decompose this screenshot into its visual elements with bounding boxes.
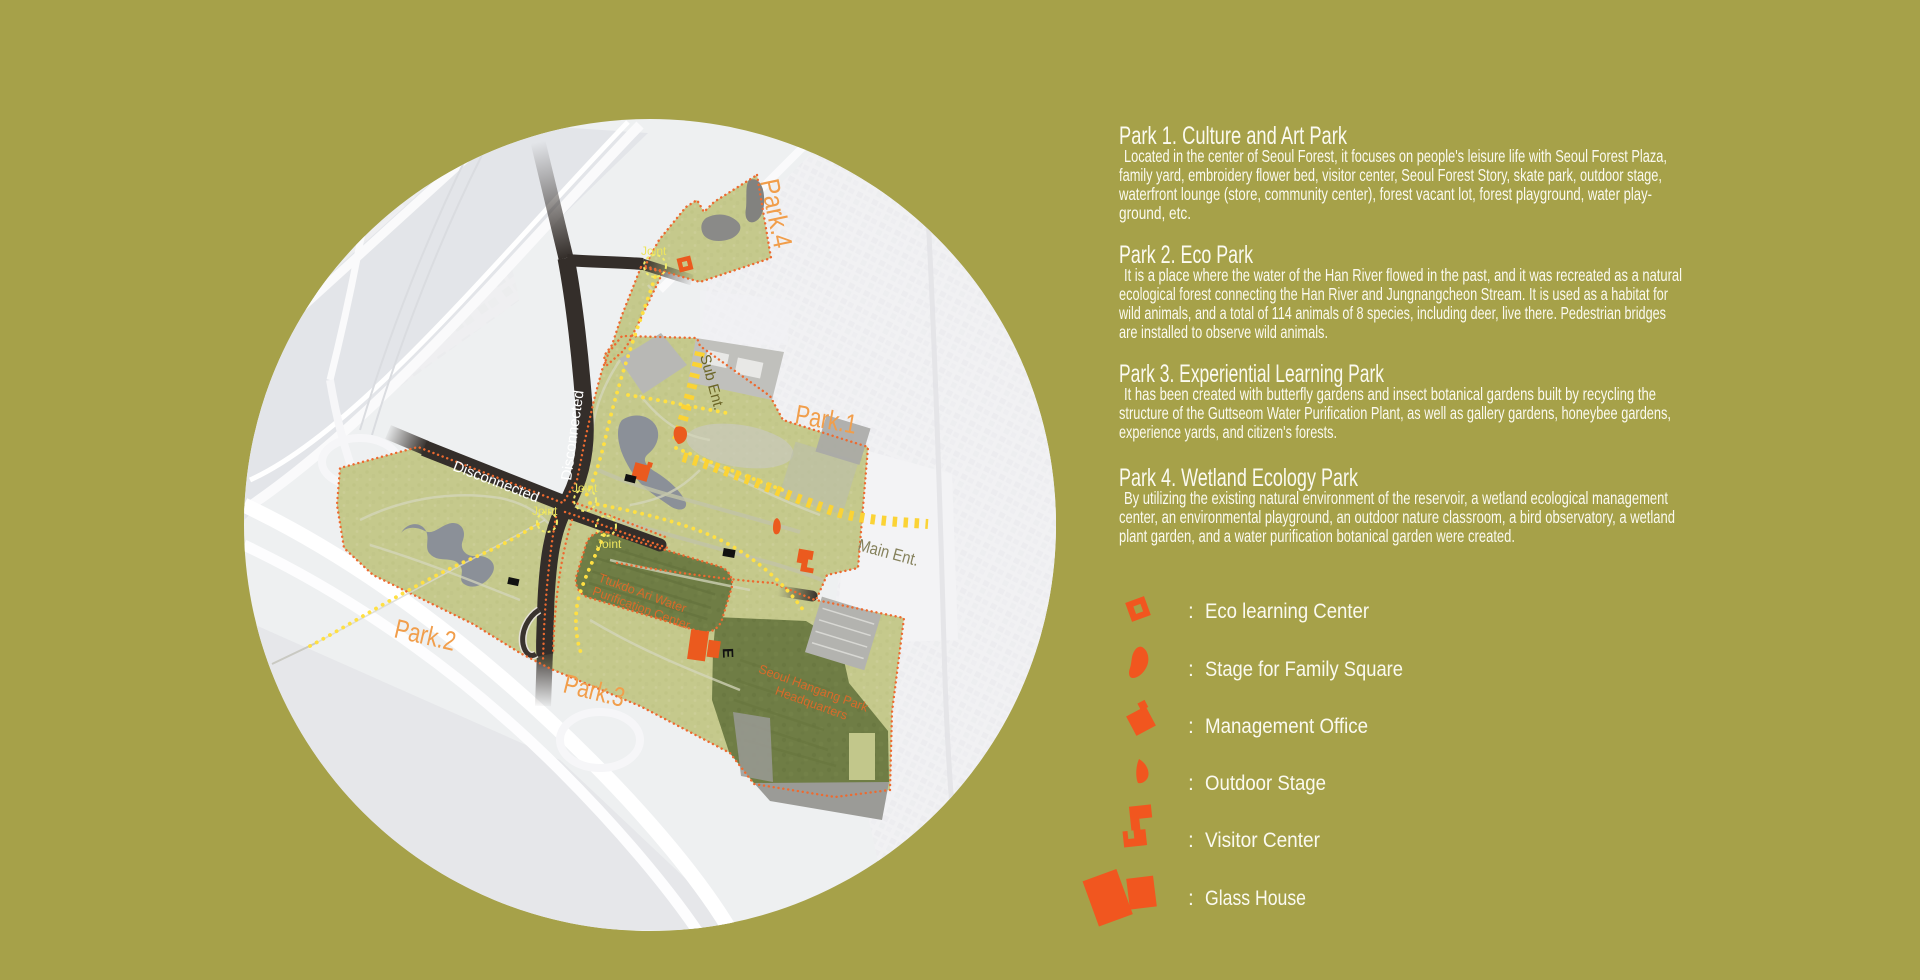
svg-text:structure of the Guttseom Wate: structure of the Guttseom Water Purifica… [1119, 403, 1671, 423]
svg-text:E: E [719, 648, 736, 659]
svg-text::: : [1188, 887, 1194, 910]
svg-text:wild animals, and a total of 1: wild animals, and a total of 114 animals… [1118, 303, 1666, 323]
svg-text::: : [1188, 772, 1194, 795]
svg-text:By utilizing the existing natu: By utilizing the existing natural enviro… [1124, 488, 1668, 508]
svg-text:ecological forest connecting t: ecological forest connecting the Han Riv… [1119, 284, 1668, 304]
svg-text:Joint: Joint [532, 504, 558, 518]
svg-text:It has been created with butte: It has been created with butterfly garde… [1124, 384, 1656, 404]
svg-text:ground, etc.: ground, etc. [1119, 203, 1191, 223]
svg-text:plant garden, and a water puri: plant garden, and a water purification b… [1119, 526, 1515, 546]
svg-text:Located in the center of Seoul: Located in the center of Seoul Forest, i… [1124, 146, 1667, 166]
svg-text:It is a place where the water: It is a place where the water of the Han… [1124, 265, 1682, 285]
svg-text::: : [1188, 658, 1194, 681]
svg-text::: : [1188, 715, 1194, 738]
svg-text:Outdoor Stage: Outdoor Stage [1205, 772, 1326, 795]
svg-text:Visitor Center: Visitor Center [1205, 829, 1320, 852]
svg-text:Glass House: Glass House [1205, 887, 1306, 910]
svg-text:experience yards, and citizen': experience yards, and citizen's forests. [1119, 422, 1337, 442]
svg-text:center, an environmental playg: center, an environmental playground, an … [1119, 507, 1675, 527]
svg-text:Joint: Joint [572, 481, 598, 495]
svg-text:Management Office: Management Office [1205, 715, 1368, 738]
svg-text:waterfront lounge (store, comm: waterfront lounge (store, community cent… [1118, 184, 1652, 204]
svg-text:Joint: Joint [641, 244, 667, 258]
svg-text:are installed to observe wild: are installed to observe wild animals. [1119, 322, 1328, 342]
svg-text:Joint: Joint [596, 537, 622, 551]
svg-text:Eco learning Center: Eco learning Center [1205, 600, 1369, 623]
svg-text::: : [1188, 600, 1194, 623]
svg-text:Stage for Family Square: Stage for Family Square [1205, 658, 1403, 681]
svg-text::: : [1188, 829, 1194, 852]
svg-text:family yard, embroidery flower: family yard, embroidery flower bed, visi… [1119, 165, 1662, 185]
